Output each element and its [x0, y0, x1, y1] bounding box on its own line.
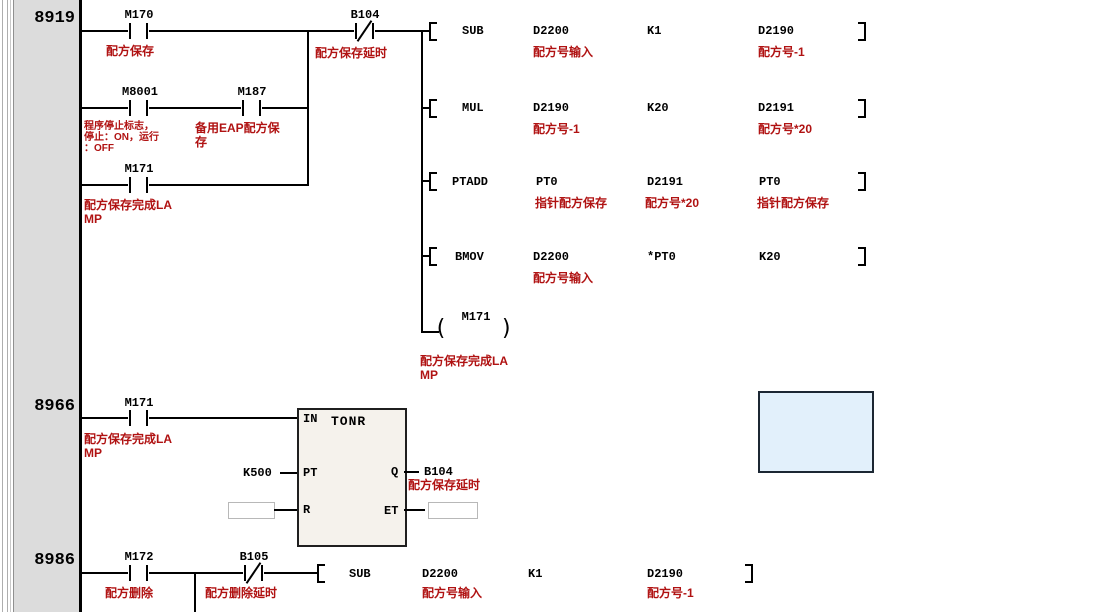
fb-in-label: IN — [303, 412, 317, 426]
contact-nc-b105[interactable] — [243, 565, 264, 581]
comment-m170: 配方保存 — [106, 44, 154, 58]
comment-m171: 配方保存完成LAMP — [84, 198, 172, 226]
contact-bar — [146, 177, 148, 193]
instr-op[interactable]: PTADD — [452, 175, 488, 189]
step-number-8986: 8986 — [14, 551, 75, 570]
instr-close-bracket — [858, 99, 866, 118]
contact-bar — [146, 565, 148, 581]
instr-arg-comment: 配方号-1 — [647, 586, 694, 600]
contact-m8001[interactable] — [128, 100, 149, 116]
splitter-line-1 — [7, 0, 8, 612]
nc-slash — [246, 562, 262, 584]
device-label-m8001: M8001 — [122, 85, 158, 99]
coil-label-m171: M171 — [462, 310, 491, 324]
splitter-line-2 — [10, 0, 11, 612]
instr-arg[interactable]: PT0 — [536, 175, 558, 189]
contact-bar — [261, 565, 263, 581]
wire-r — [274, 509, 297, 511]
device-label-b105: B105 — [240, 550, 269, 564]
instr-arg[interactable]: K20 — [759, 250, 781, 264]
instr-arg[interactable]: D2190 — [647, 567, 683, 581]
coil-open-paren[interactable]: ( — [434, 318, 447, 340]
contact-m170[interactable] — [128, 23, 149, 39]
instr-arg-comment: 指针配方保存 — [535, 196, 607, 210]
contact-bar — [259, 100, 261, 116]
instr-arg[interactable]: K1 — [528, 567, 542, 581]
wire — [82, 572, 318, 574]
instr-close-bracket — [858, 22, 866, 41]
comment-m8001: 程序停止标志，停止：ON，运行：OFF — [84, 121, 159, 154]
q-output-device[interactable]: B104 — [424, 465, 453, 479]
comment-b104: 配方保存延时 — [315, 46, 387, 60]
comment-m171-r2: 配方保存完成LAMP — [84, 432, 172, 460]
wire-q — [404, 471, 419, 473]
step-number-8919: 8919 — [14, 9, 75, 28]
comment-coil-m171: 配方保存完成LAMP — [420, 354, 508, 382]
wire-branch-down — [194, 572, 196, 612]
instr-arg[interactable]: D2200 — [533, 24, 569, 38]
instr-arg-comment: 配方号*20 — [645, 196, 699, 210]
r-input-box[interactable] — [228, 502, 275, 519]
contact-nc-b104[interactable] — [354, 23, 375, 39]
wire-pt — [280, 472, 297, 474]
device-label-m187: M187 — [238, 85, 267, 99]
instr-arg[interactable]: D2190 — [758, 24, 794, 38]
wire-et — [404, 509, 425, 511]
contact-m171-r2[interactable] — [128, 410, 149, 426]
wire — [82, 107, 309, 109]
instr-op[interactable]: BMOV — [455, 250, 484, 264]
comment-q-output: 配方保存延时 — [408, 478, 480, 492]
fb-pt-label: PT — [303, 466, 317, 480]
instr-arg[interactable]: D2191 — [758, 101, 794, 115]
step-number-gutter — [13, 0, 79, 612]
et-output-box[interactable] — [428, 502, 478, 519]
instr-arg[interactable]: D2200 — [533, 250, 569, 264]
contact-bar — [242, 100, 244, 116]
device-label-m171: M171 — [125, 162, 154, 176]
instr-arg-comment: 配方号-1 — [758, 45, 805, 59]
contact-bar — [129, 100, 131, 116]
device-label-m172: M172 — [125, 550, 154, 564]
contact-bar — [129, 177, 131, 193]
instr-op[interactable]: SUB — [462, 24, 484, 38]
wire — [82, 184, 309, 186]
instr-arg[interactable]: K20 — [647, 101, 669, 115]
device-label-b104: B104 — [351, 8, 380, 22]
instr-arg[interactable]: D2190 — [533, 101, 569, 115]
instr-arg-comment: 配方号输入 — [533, 271, 593, 285]
window-edge-line — [2, 0, 3, 612]
coil-close-paren[interactable]: ) — [500, 318, 513, 340]
instr-arg[interactable]: K1 — [647, 24, 661, 38]
instr-arg-comment: 配方号输入 — [533, 45, 593, 59]
nc-slash — [357, 20, 373, 42]
fb-q-label: Q — [391, 465, 398, 479]
pt-input-value[interactable]: K500 — [243, 466, 272, 480]
device-label-m171-r2: M171 — [125, 396, 154, 410]
instr-close-bracket — [858, 247, 866, 266]
wire — [82, 417, 297, 419]
contact-m187[interactable] — [241, 100, 262, 116]
instr-open-bracket — [429, 247, 437, 266]
instr-arg[interactable]: D2191 — [647, 175, 683, 189]
comment-m172: 配方删除 — [105, 586, 153, 600]
instr-arg-comment: 指针配方保存 — [757, 196, 829, 210]
instr-open-bracket — [429, 22, 437, 41]
fb-title: TONR — [331, 414, 366, 429]
comment-b105: 配方删除延时 — [205, 586, 277, 600]
contact-m172[interactable] — [128, 565, 149, 581]
instr-arg[interactable]: D2200 — [422, 567, 458, 581]
comment-m187: 备用EAP配方保存 — [195, 121, 280, 149]
contact-bar — [355, 23, 357, 39]
instr-arg[interactable]: *PT0 — [647, 250, 676, 264]
instr-op[interactable]: SUB — [349, 567, 371, 581]
left-power-rail — [79, 0, 82, 612]
instr-arg-comment: 配方号-1 — [533, 122, 580, 136]
step-number-8966: 8966 — [14, 397, 75, 416]
ladder-editor-canvas: 8919 8966 8986 M170 B104 M8001 M187 M171… — [0, 0, 1093, 612]
contact-bar — [146, 23, 148, 39]
fb-et-label: ET — [384, 504, 398, 518]
instr-close-bracket — [745, 564, 753, 583]
contact-bar — [372, 23, 374, 39]
contact-bar — [146, 410, 148, 426]
contact-bar — [129, 565, 131, 581]
selection-highlight-box[interactable] — [758, 391, 874, 473]
instr-arg[interactable]: PT0 — [759, 175, 781, 189]
instr-open-bracket — [429, 99, 437, 118]
instr-close-bracket — [858, 172, 866, 191]
instr-arg-comment: 配方号*20 — [758, 122, 812, 136]
instr-open-bracket — [317, 564, 325, 583]
contact-m171[interactable] — [128, 177, 149, 193]
device-label-m170: M170 — [125, 8, 154, 22]
contact-bar — [129, 23, 131, 39]
contact-bar — [244, 565, 246, 581]
wire-branch-join — [307, 30, 309, 186]
instr-arg-comment: 配方号输入 — [422, 586, 482, 600]
fb-r-label: R — [303, 503, 310, 517]
instr-op[interactable]: MUL — [462, 101, 484, 115]
contact-bar — [129, 410, 131, 426]
contact-bar — [146, 100, 148, 116]
instr-open-bracket — [429, 172, 437, 191]
